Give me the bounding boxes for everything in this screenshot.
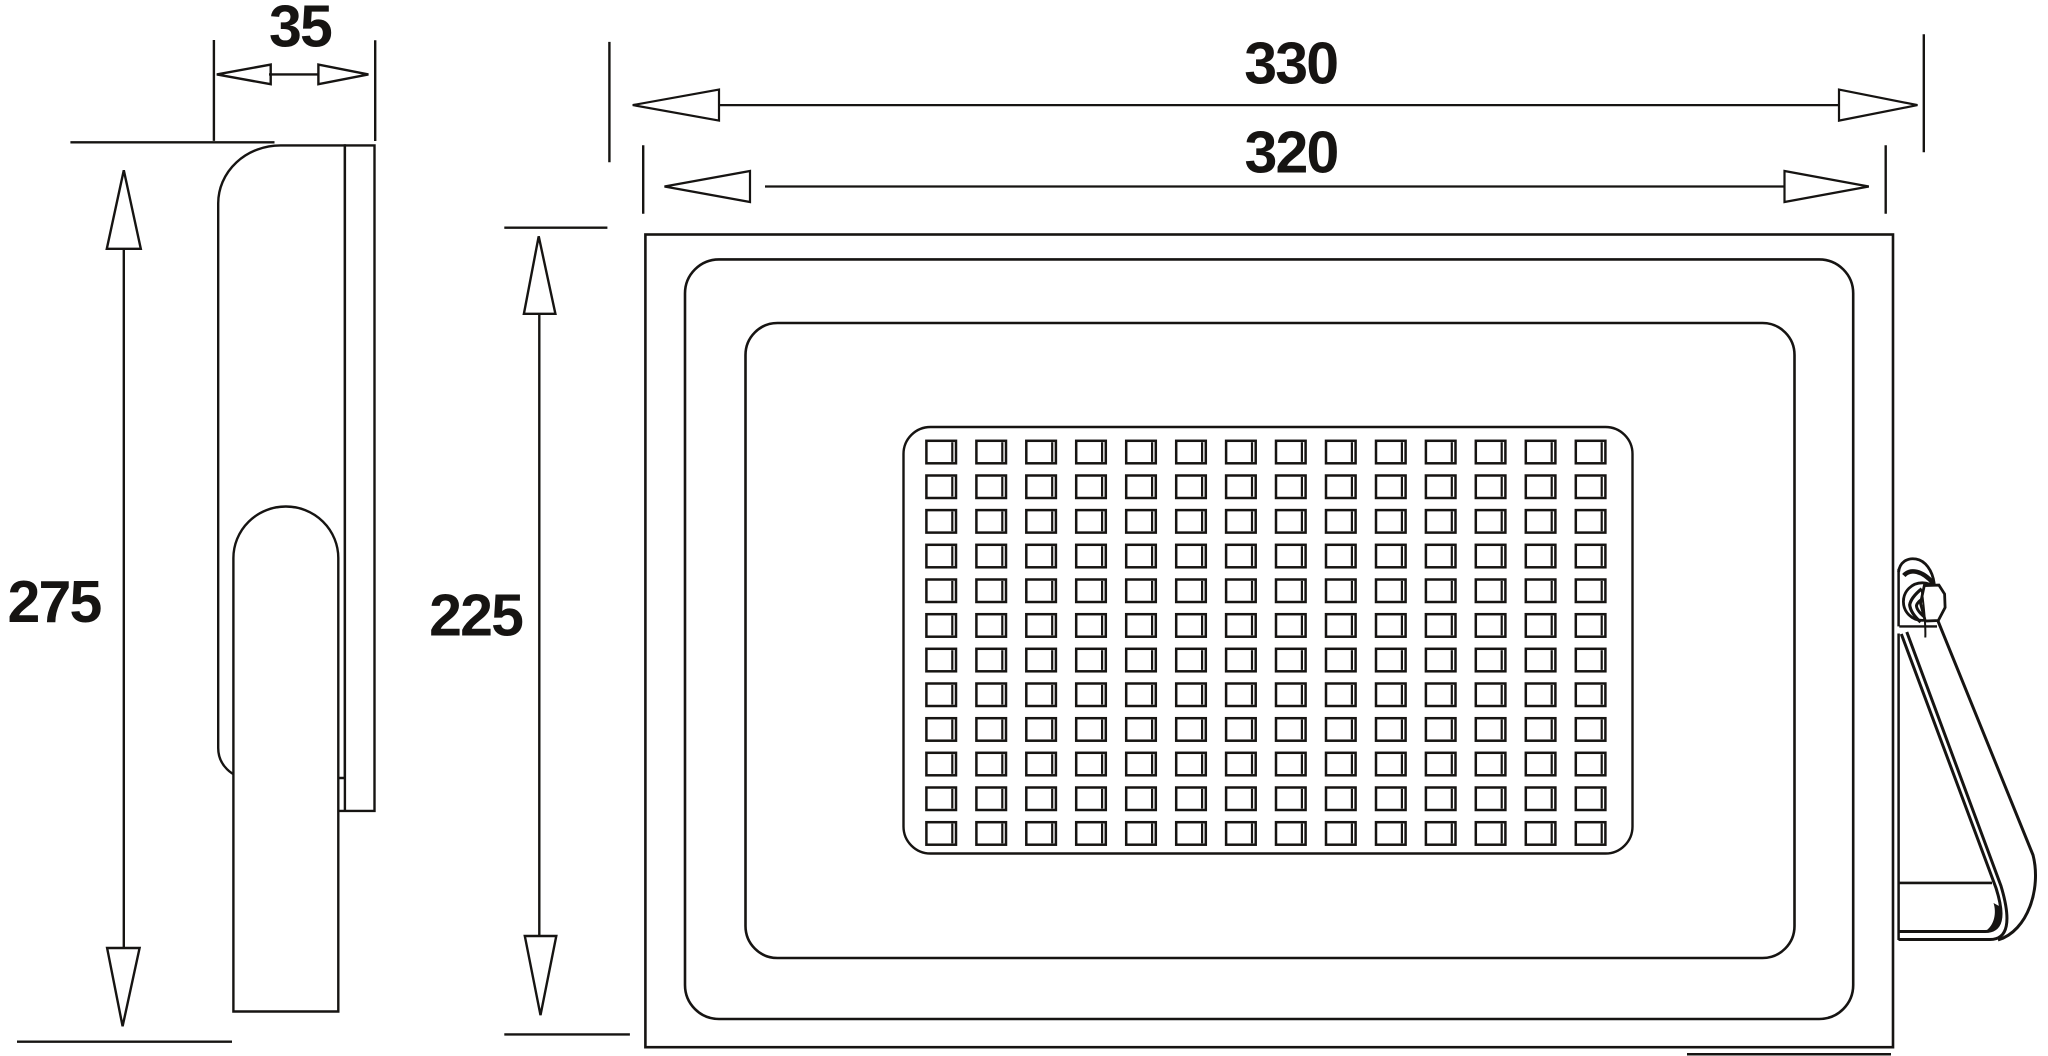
- svg-text:275: 275: [7, 569, 101, 635]
- svg-text:225: 225: [429, 583, 523, 649]
- svg-text:330: 330: [1244, 31, 1337, 97]
- svg-text:320: 320: [1244, 119, 1337, 185]
- svg-text:35: 35: [269, 0, 332, 60]
